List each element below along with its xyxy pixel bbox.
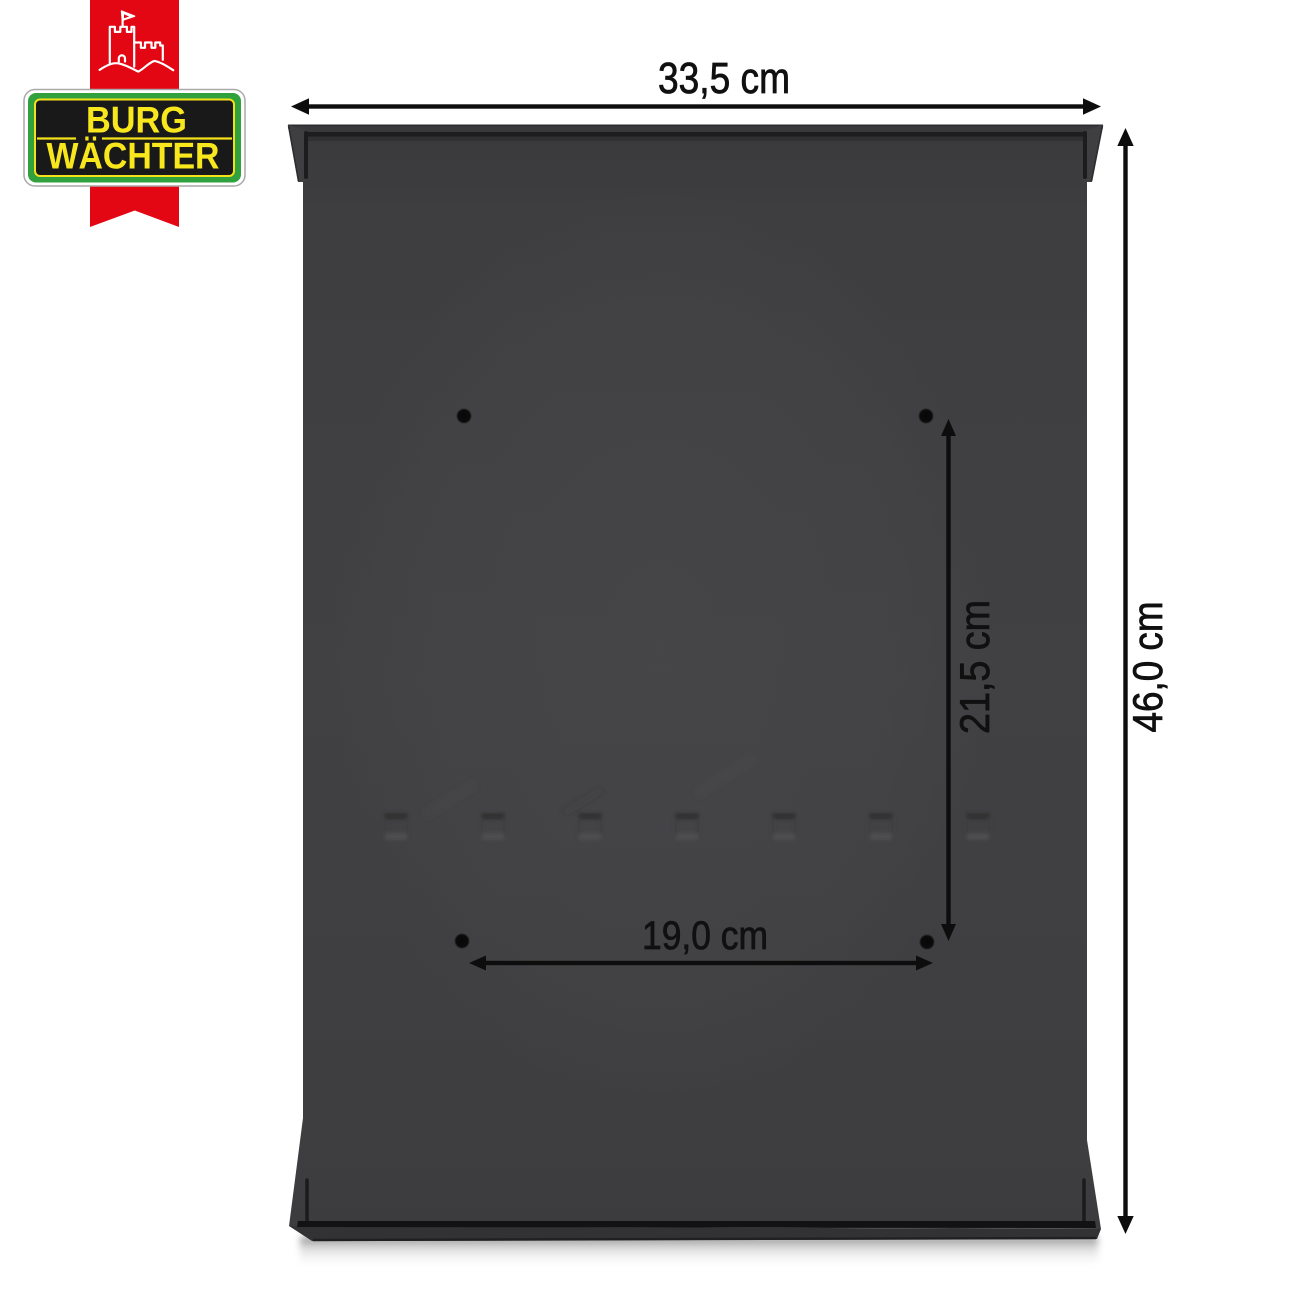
svg-text:WÄCHTER: WÄCHTER <box>47 136 220 177</box>
svg-text:46,0 cm: 46,0 cm <box>1124 602 1171 733</box>
svg-text:33,5 cm: 33,5 cm <box>658 54 790 103</box>
svg-text:BURG: BURG <box>86 100 187 141</box>
svg-text:21,5 cm: 21,5 cm <box>951 600 998 734</box>
svg-text:19,0 cm: 19,0 cm <box>642 914 768 958</box>
